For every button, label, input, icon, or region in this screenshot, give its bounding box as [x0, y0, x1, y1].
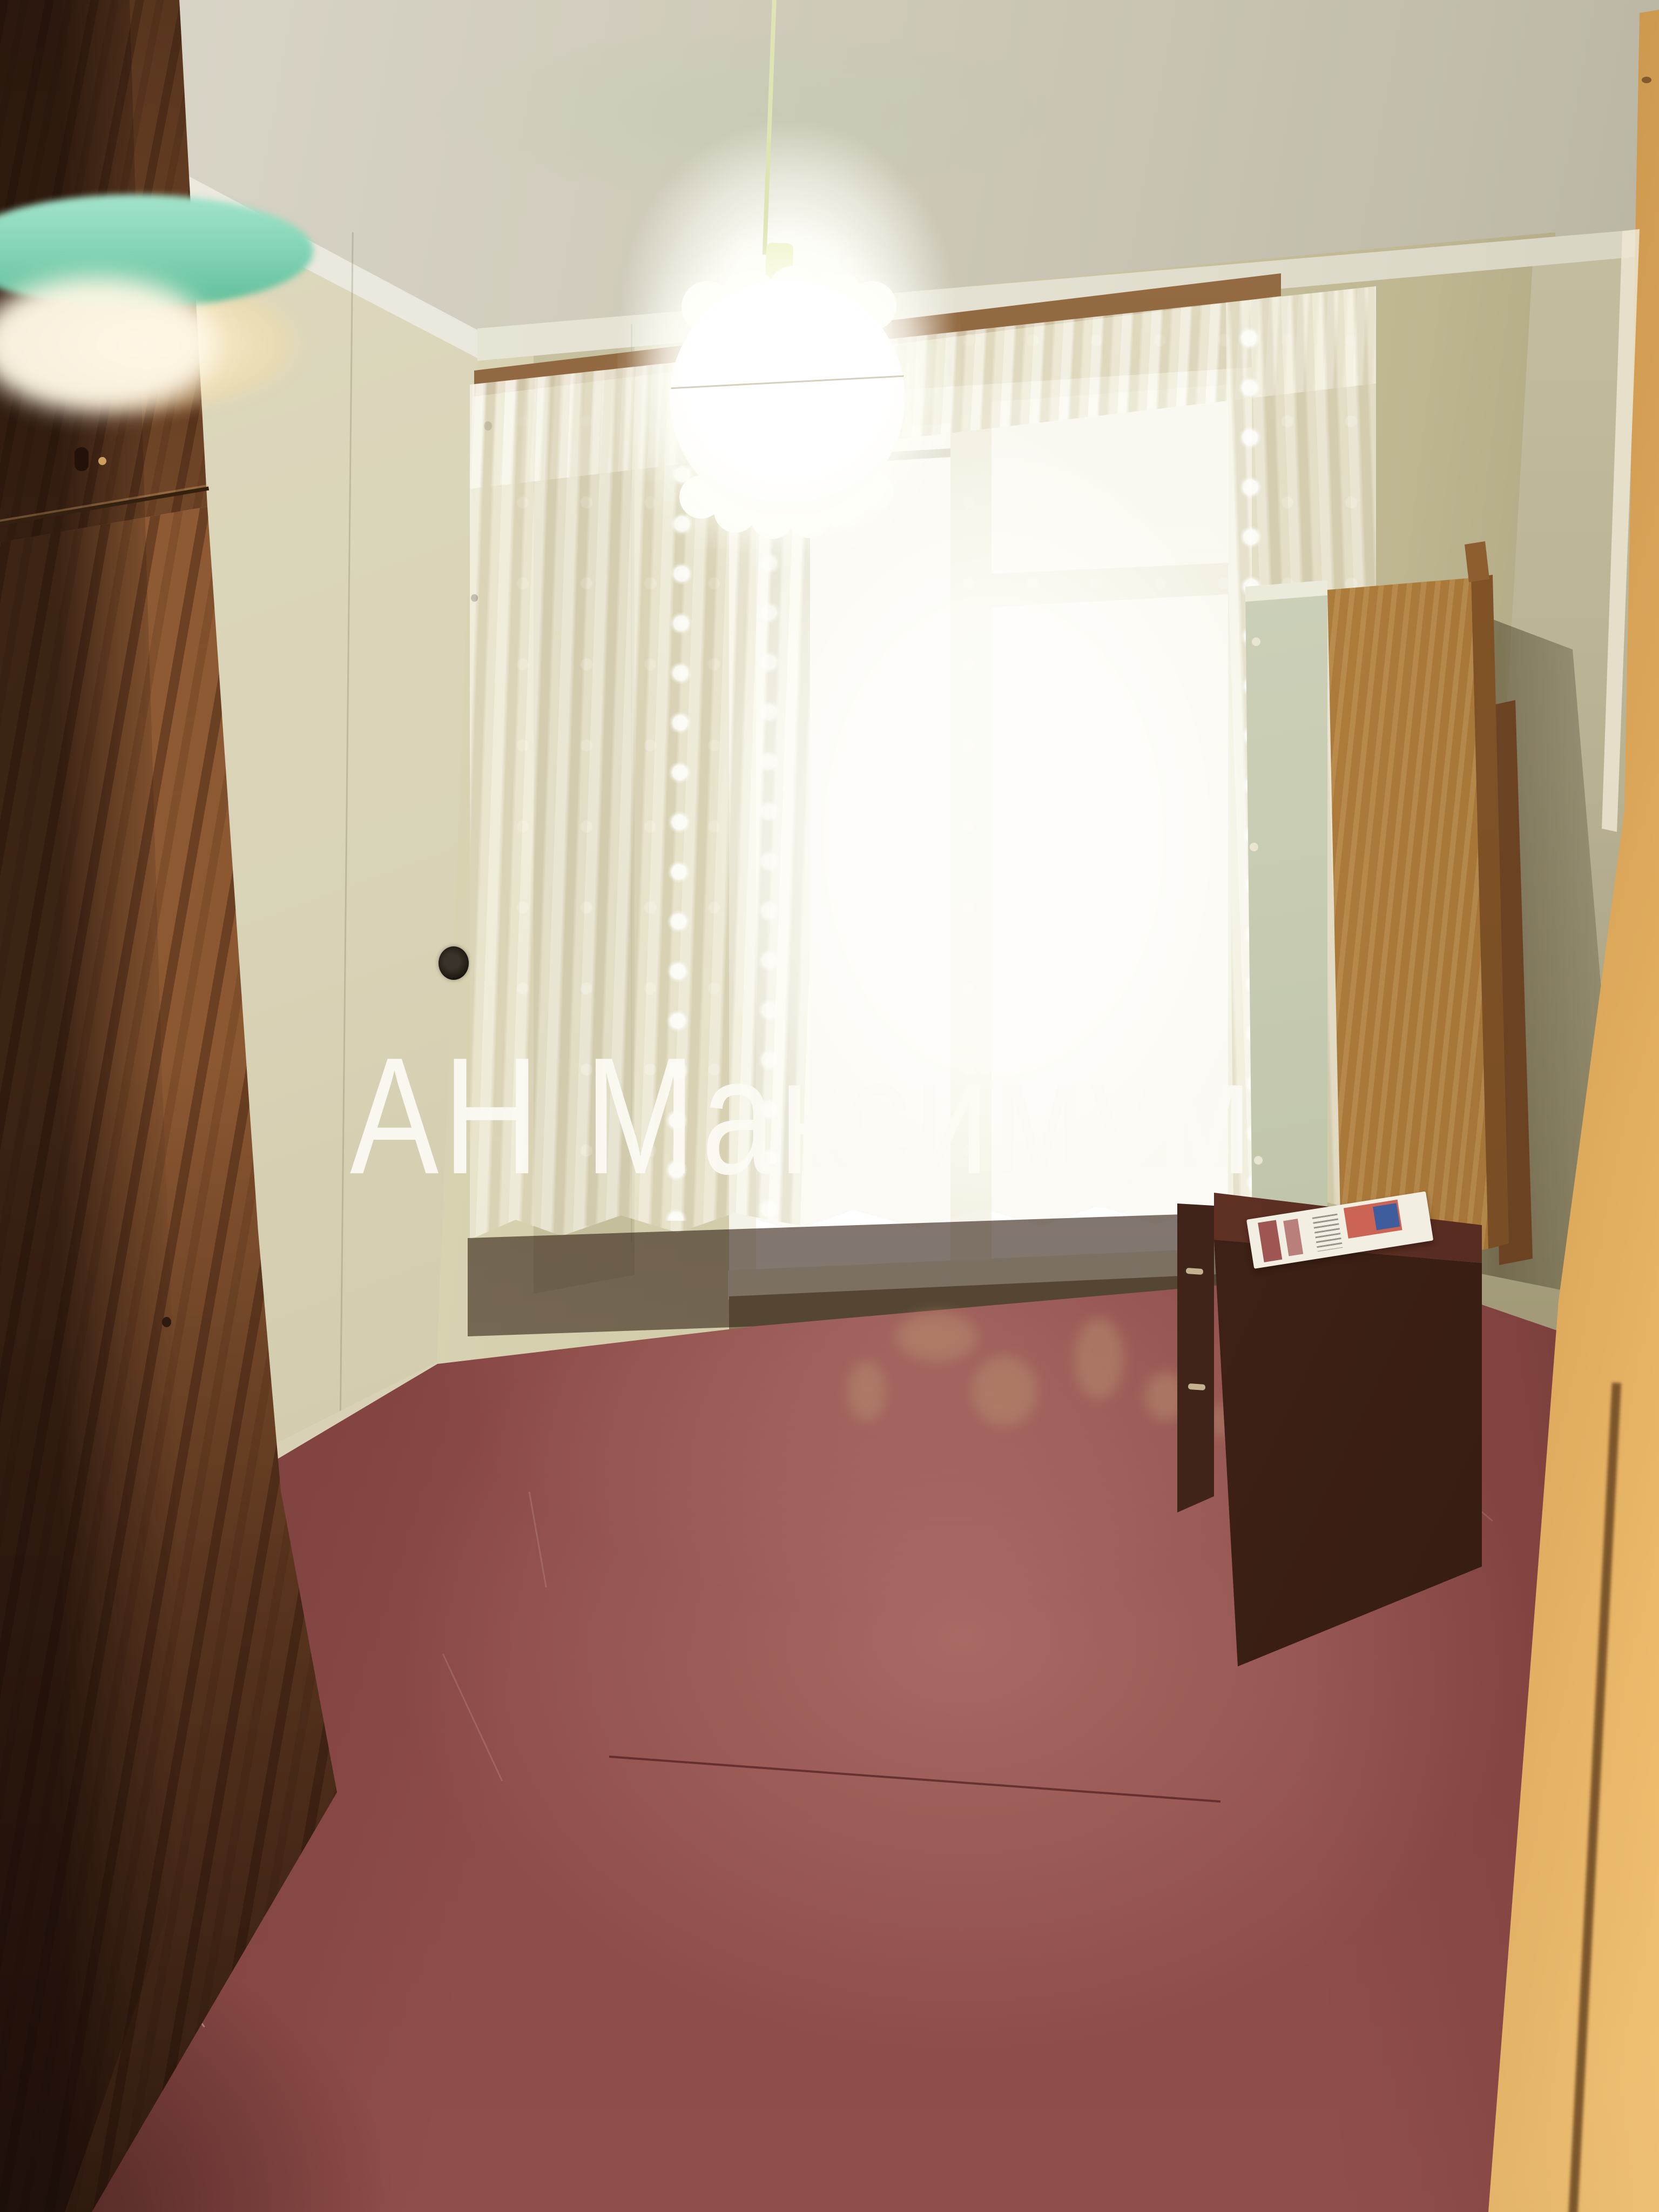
room-photo: АН Максимум: [0, 0, 1659, 2212]
photo-vignette: [0, 0, 1659, 2212]
